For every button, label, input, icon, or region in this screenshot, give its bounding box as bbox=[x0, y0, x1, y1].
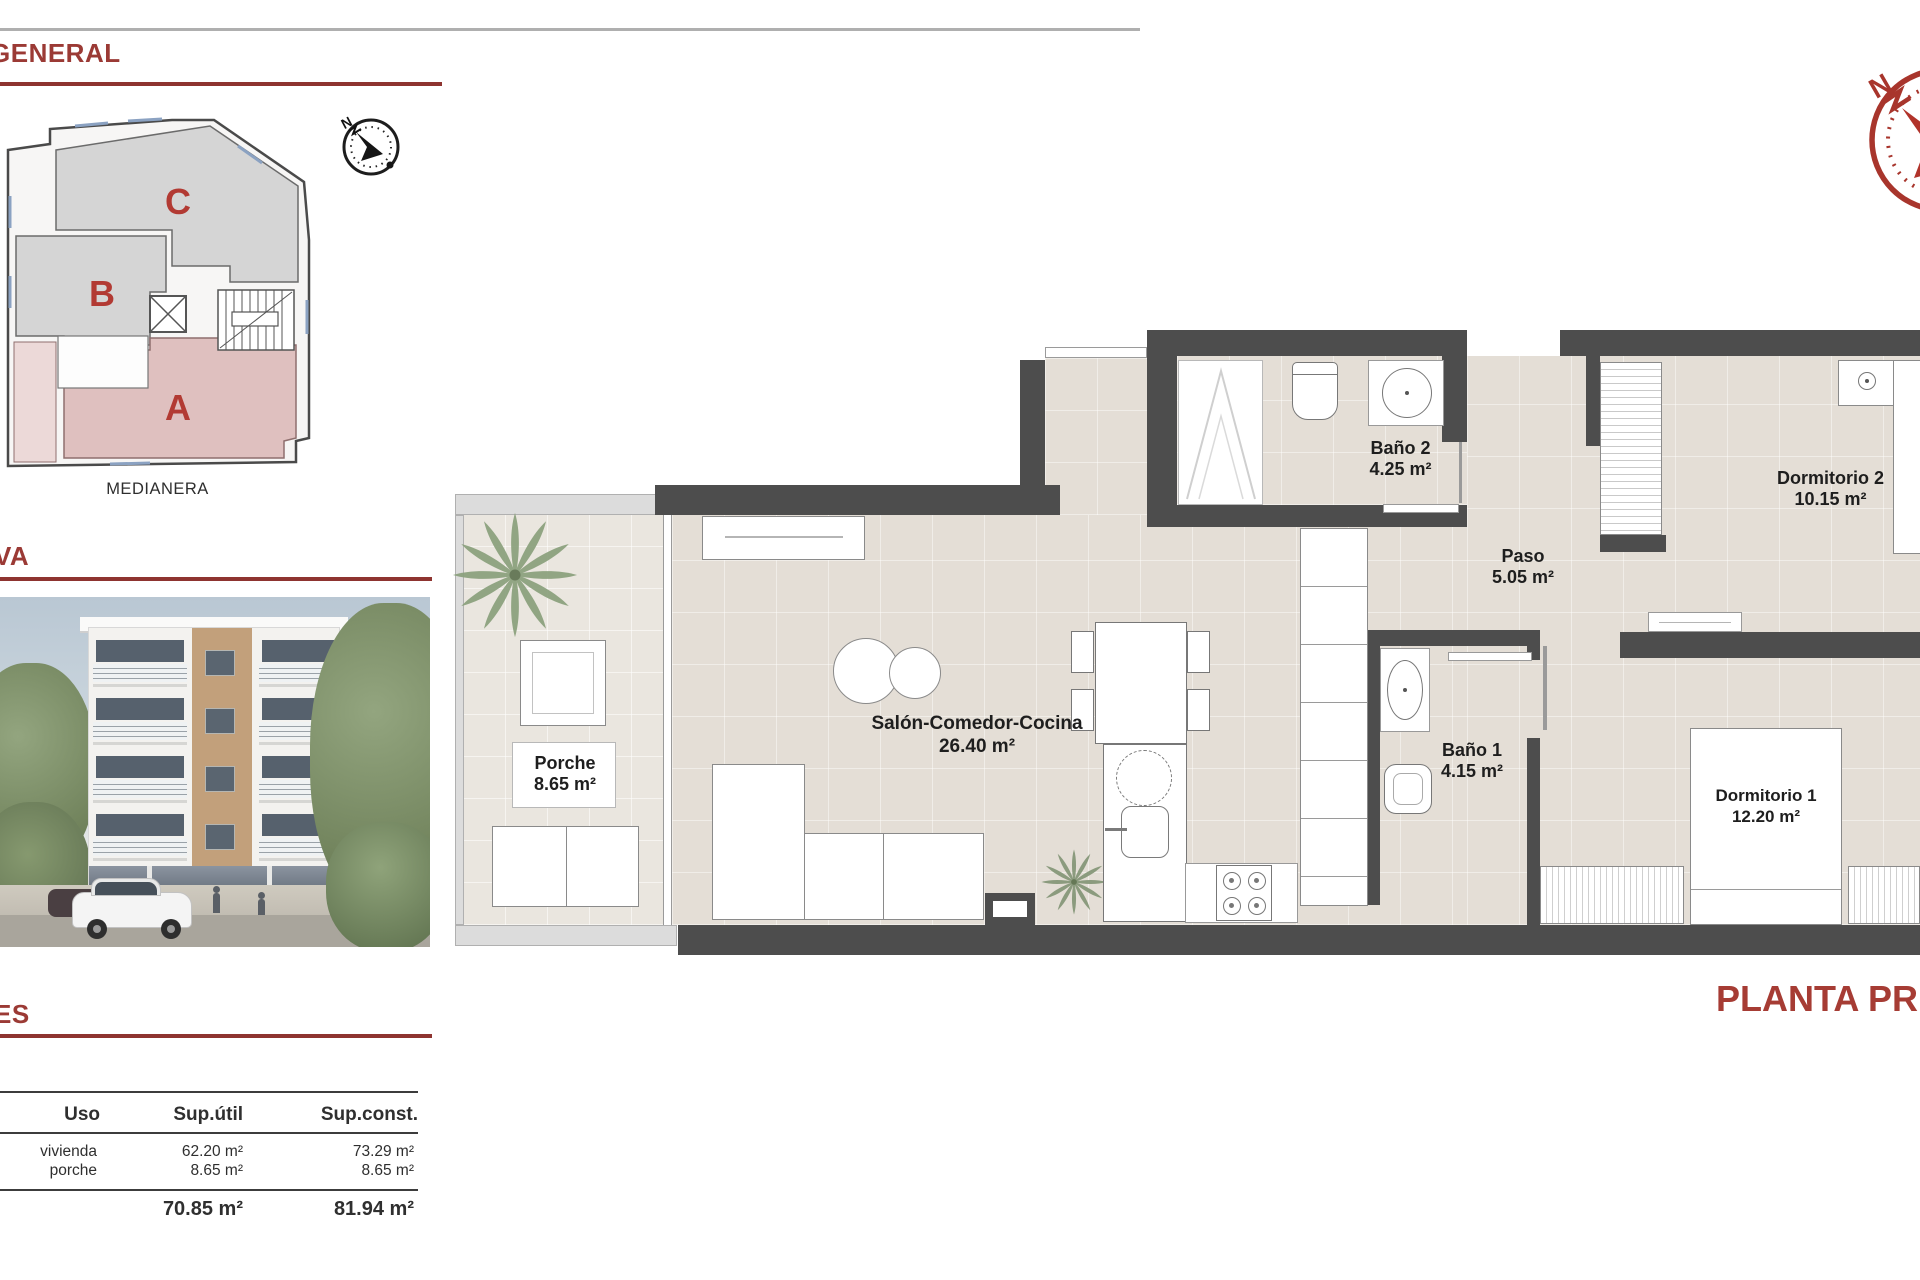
room-name: Baño 2 bbox=[1328, 438, 1473, 459]
wardrobe bbox=[1600, 362, 1662, 535]
room-name: Dormitorio 1 bbox=[1691, 785, 1841, 806]
wall-segment bbox=[1620, 632, 1920, 658]
table-row-const: 73.29 m² bbox=[334, 1143, 414, 1161]
site-section-a-strip bbox=[14, 342, 56, 462]
wall-segment bbox=[1586, 356, 1600, 446]
towel-rail bbox=[1383, 504, 1459, 513]
radiator-window bbox=[1848, 866, 1920, 924]
indoor-plant bbox=[1036, 844, 1112, 920]
wall-segment bbox=[1560, 330, 1920, 356]
room-area: 12.20 m² bbox=[1691, 806, 1841, 827]
medianera-caption: MEDIANERA bbox=[50, 480, 265, 499]
bathroom-sink-counter bbox=[1380, 648, 1430, 732]
site-plan: C B A bbox=[0, 90, 320, 490]
kitchen-tall-cabinet bbox=[1300, 528, 1368, 906]
coffee-table bbox=[889, 647, 941, 699]
table-row-const: 8.65 m² bbox=[334, 1162, 414, 1180]
dining-chair bbox=[1187, 689, 1210, 731]
plan-title: PLANTA PRIMERA bbox=[1716, 978, 1920, 1020]
room-label-paso: Paso 5.05 m² bbox=[1458, 546, 1588, 588]
window bbox=[205, 824, 235, 850]
room-label-salon: Salón-Comedor-Cocina 26.40 m² bbox=[867, 712, 1087, 758]
north-compass-icon-large: N bbox=[1850, 56, 1920, 226]
window bbox=[205, 708, 235, 734]
table-row-uso: vivienda bbox=[17, 1143, 97, 1161]
balcony bbox=[93, 754, 187, 803]
toilet bbox=[1292, 362, 1338, 420]
sofa bbox=[712, 764, 805, 920]
wall-segment bbox=[1147, 356, 1177, 527]
wall-segment bbox=[1600, 535, 1666, 552]
dining-chair bbox=[1071, 631, 1094, 673]
bed: Dormitorio 1 12.20 m² bbox=[1690, 728, 1842, 925]
wall-segment bbox=[1368, 630, 1540, 646]
table-total-util: 70.85 m² bbox=[153, 1198, 243, 1221]
porch-parapet-bottom bbox=[455, 925, 677, 946]
appliance-handle bbox=[1105, 828, 1127, 831]
kitchen-sink bbox=[1116, 750, 1172, 806]
shower bbox=[1178, 360, 1263, 505]
bed bbox=[1893, 360, 1920, 554]
towel-rail bbox=[1448, 652, 1532, 661]
dining-chair bbox=[1187, 631, 1210, 673]
dining-table bbox=[1095, 622, 1187, 744]
building-render bbox=[0, 597, 430, 947]
wall-segment bbox=[678, 925, 1920, 955]
table-line-header bbox=[0, 1132, 418, 1134]
porche-label-box: Porche 8.65 m² bbox=[512, 742, 616, 808]
wall-segment bbox=[1368, 646, 1380, 905]
room-name: Dormitorio 2 bbox=[1748, 468, 1913, 489]
porch-table bbox=[520, 640, 606, 726]
radiator-window bbox=[1540, 866, 1684, 924]
room-area: 8.65 m² bbox=[513, 774, 617, 795]
sheet-border-line bbox=[0, 28, 1140, 31]
site-elevator bbox=[150, 296, 186, 332]
floor-strip bbox=[1045, 356, 1147, 515]
person bbox=[213, 893, 220, 913]
table-total-const: 81.94 m² bbox=[324, 1198, 414, 1221]
heading-perspectiva-rule bbox=[0, 577, 432, 581]
table-row-uso: porche bbox=[17, 1162, 97, 1180]
plan-sheet: GENERAL bbox=[0, 0, 1920, 1280]
kitchen-appliance bbox=[1121, 806, 1169, 858]
heading-general: GENERAL bbox=[0, 38, 121, 69]
porch-glass-door bbox=[663, 515, 672, 925]
site-label-c: C bbox=[165, 181, 191, 222]
desk bbox=[1648, 612, 1742, 632]
porch-lounger bbox=[492, 826, 639, 907]
sofa bbox=[804, 833, 984, 920]
room-name: Porche bbox=[513, 753, 617, 774]
table-line-top bbox=[0, 1091, 418, 1093]
stove bbox=[1216, 865, 1272, 921]
building-facade bbox=[88, 627, 340, 899]
table-row-util: 62.20 m² bbox=[163, 1143, 243, 1161]
room-label-bano1: Baño 1 4.15 m² bbox=[1402, 740, 1542, 782]
person bbox=[258, 899, 265, 915]
table-row-util: 8.65 m² bbox=[163, 1162, 243, 1180]
heading-perspectiva: VA bbox=[0, 541, 29, 572]
wall-segment bbox=[1147, 330, 1467, 356]
heading-superficies-rule bbox=[0, 1034, 432, 1038]
room-name: Paso bbox=[1458, 546, 1588, 567]
balcony bbox=[93, 812, 187, 861]
heading-superficies: ES bbox=[0, 999, 30, 1030]
wall-segment bbox=[655, 485, 1060, 515]
door-leaf bbox=[1543, 646, 1547, 730]
balcony bbox=[93, 696, 187, 745]
balcony bbox=[93, 638, 187, 687]
parked-car bbox=[72, 892, 192, 928]
window bbox=[205, 650, 235, 676]
room-name: Salón-Comedor-Cocina bbox=[867, 712, 1087, 735]
room-label-dormitorio2: Dormitorio 2 10.15 m² bbox=[1748, 468, 1913, 510]
room-area: 4.25 m² bbox=[1328, 459, 1473, 480]
site-stairs bbox=[218, 290, 294, 350]
nightstand bbox=[1838, 360, 1894, 406]
tree bbox=[326, 822, 430, 947]
heading-general-rule bbox=[0, 82, 442, 86]
room-name: Baño 1 bbox=[1402, 740, 1542, 761]
room-area: 26.40 m² bbox=[867, 735, 1087, 758]
room-area: 10.15 m² bbox=[1748, 489, 1913, 510]
window bbox=[205, 766, 235, 792]
room-area: 5.05 m² bbox=[1458, 567, 1588, 588]
table-line-total bbox=[0, 1189, 418, 1191]
col-header-sup-util: Sup.útil bbox=[143, 1104, 243, 1126]
planter-box-inner bbox=[993, 901, 1027, 917]
north-compass-icon: N bbox=[334, 110, 406, 182]
site-label-a: A bbox=[165, 387, 191, 428]
kitchen-window bbox=[1045, 347, 1147, 358]
site-label-b: B bbox=[89, 273, 115, 314]
col-header-uso: Uso bbox=[20, 1104, 100, 1126]
palm-plant bbox=[452, 512, 578, 638]
bathroom-sink-counter bbox=[1368, 360, 1444, 426]
site-room bbox=[58, 336, 148, 388]
room-area: 4.15 m² bbox=[1402, 761, 1542, 782]
wall-segment bbox=[1442, 356, 1467, 442]
col-header-sup-const: Sup.const. bbox=[288, 1104, 418, 1126]
room-label-bano2: Baño 2 4.25 m² bbox=[1328, 438, 1473, 480]
sideboard bbox=[702, 516, 865, 560]
wall-segment bbox=[1020, 360, 1045, 485]
